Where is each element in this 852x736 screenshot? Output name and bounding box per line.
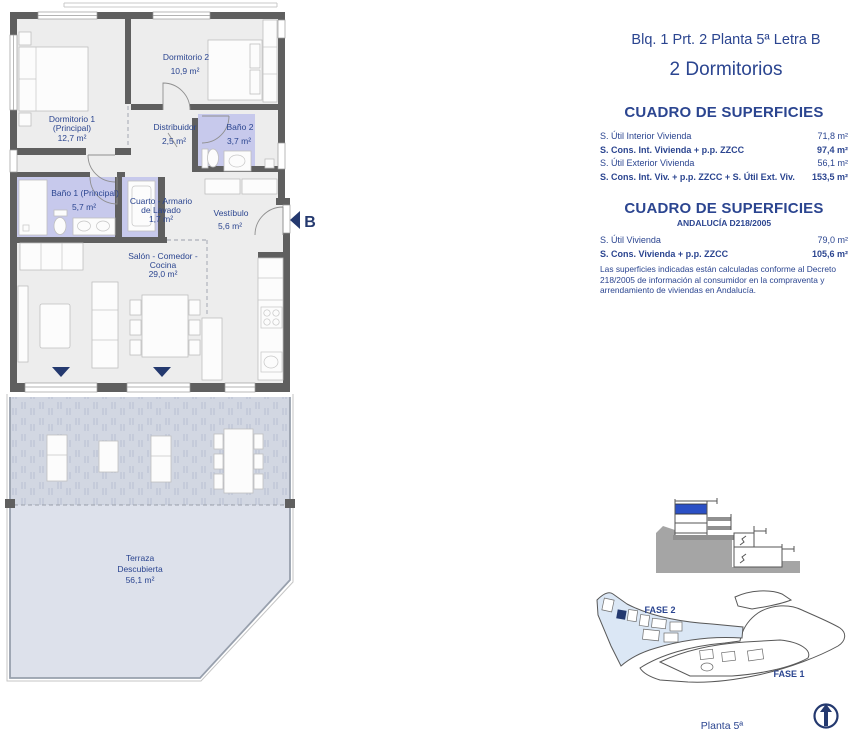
surfaces-table: CUADRO DE SUPERFICIES S. Útil Interior V…: [600, 104, 848, 184]
svg-text:Baño 2: Baño 2: [227, 122, 254, 132]
north-arrow-icon: [815, 704, 838, 728]
table-row: S. Útil Exterior Vivienda 56,1 m²: [600, 157, 848, 171]
table-row: S. Útil Interior Vivienda 71,8 m²: [600, 130, 848, 144]
highlighted-unit: [616, 609, 626, 619]
surfaces-table-andalucia-subtitle: ANDALUCÍA D218/2005: [600, 218, 848, 228]
site-plan: FASE 2 FASE 1: [597, 591, 845, 682]
svg-text:2,5 m²: 2,5 m²: [162, 136, 186, 146]
svg-text:12,7 m²: 12,7 m²: [58, 133, 87, 143]
surfaces-table-andalucia: CUADRO DE SUPERFICIES ANDALUCÍA D218/200…: [600, 200, 848, 296]
svg-text:Dormitorio 2: Dormitorio 2: [163, 52, 210, 62]
svg-text:(Principal): (Principal): [53, 123, 91, 133]
section-diagram: [656, 498, 800, 573]
svg-text:Distribuidor: Distribuidor: [154, 122, 197, 132]
entrance-arrow-icon: [290, 211, 300, 229]
surfaces-table-andalucia-title: CUADRO DE SUPERFICIES: [600, 200, 848, 217]
svg-text:10,9 m²: 10,9 m²: [171, 66, 200, 76]
fase-1-label: FASE 1: [773, 669, 804, 679]
svg-text:29,0 m²: 29,0 m²: [149, 269, 178, 279]
floorplan-sheet: { "header": { "line1": "Blq. 1 Prt. 2 Pl…: [0, 0, 852, 736]
apartment: B Dormitorio 2 10,9 m² Dormitorio 1 (Pri…: [10, 3, 316, 392]
fase-2-label: FASE 2: [644, 605, 675, 615]
table-row: S. Cons. Int. Viv. + p.p. ZZCC + S. Útil…: [600, 171, 848, 185]
svg-text:Descubierta: Descubierta: [117, 564, 163, 574]
unit-type-title: 2 Dormitorios: [600, 59, 852, 81]
svg-text:Terraza: Terraza: [126, 553, 155, 563]
svg-text:5,6 m²: 5,6 m²: [218, 221, 242, 231]
unit-reference: Blq. 1 Prt. 2 Planta 5ª Letra B: [600, 32, 852, 48]
entrance-letter: B: [304, 214, 316, 231]
svg-text:5,7 m²: 5,7 m²: [72, 202, 96, 212]
surfaces-table-title: CUADRO DE SUPERFICIES: [600, 104, 848, 121]
svg-text:56,1 m²: 56,1 m²: [126, 575, 155, 585]
entrance-marker: B: [290, 211, 316, 231]
svg-text:1,7 m²: 1,7 m²: [149, 214, 173, 224]
table-row: S. Cons. Vivienda + p.p. ZZCC 105,6 m²: [600, 248, 848, 262]
table-row: S. Cons. Int. Vivienda + p.p. ZZCC 97,4 …: [600, 144, 848, 158]
svg-text:Vestíbulo: Vestíbulo: [214, 208, 249, 218]
table-row: S. Útil Vivienda 79,0 m²: [600, 234, 848, 248]
legal-note: Las superficies indicadas están calculad…: [600, 264, 848, 296]
roof-overhang-lines: [64, 3, 277, 7]
svg-text:3,7 m²: 3,7 m²: [227, 136, 251, 146]
svg-text:Baño 1 (Principal): Baño 1 (Principal): [51, 188, 119, 198]
terrace: Terraza Descubierta 56,1 m²: [5, 394, 295, 681]
floor-caption: Planta 5ª: [701, 720, 744, 732]
